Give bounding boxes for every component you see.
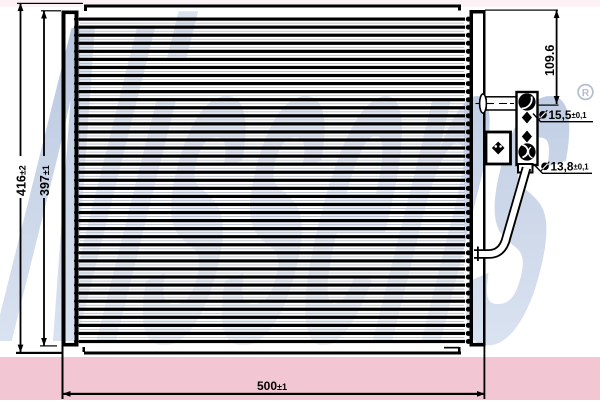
svg-text:416±2: 416±2 — [14, 165, 28, 196]
svg-text:15,5±0,1: 15,5±0,1 — [549, 108, 588, 122]
svg-text:109.6: 109.6 — [543, 45, 557, 76]
svg-text:13,8±0,1: 13,8±0,1 — [551, 160, 590, 174]
svg-text:500±1: 500±1 — [257, 379, 287, 393]
svg-text:397±1: 397±1 — [38, 165, 52, 196]
svg-text:R: R — [582, 88, 590, 99]
